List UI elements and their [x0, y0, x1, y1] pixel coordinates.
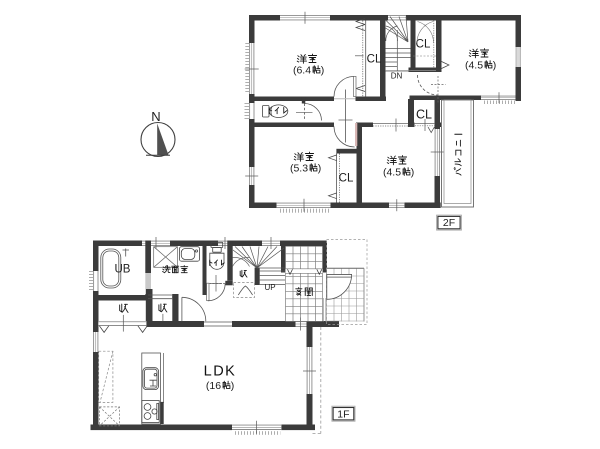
- svg-text:UP: UP: [264, 283, 275, 292]
- svg-text:CL: CL: [416, 39, 431, 51]
- svg-text:LDK: LDK: [204, 364, 237, 380]
- svg-text:(4.5: (4.5: [383, 167, 401, 179]
- svg-text:): ): [321, 65, 325, 77]
- svg-text:): ): [493, 60, 497, 72]
- svg-text:): ): [411, 167, 415, 179]
- svg-text:(6.4: (6.4: [293, 65, 311, 77]
- svg-text:2F: 2F: [443, 217, 455, 229]
- svg-text:CL: CL: [339, 173, 354, 185]
- svg-text:CL: CL: [416, 108, 432, 122]
- svg-text:): ): [231, 380, 235, 392]
- svg-text:1F: 1F: [337, 408, 349, 420]
- svg-text:): ): [318, 163, 322, 175]
- svg-text:DN: DN: [391, 72, 403, 81]
- svg-text:(16: (16: [206, 380, 221, 392]
- svg-text:UB: UB: [115, 264, 131, 276]
- svg-text:(4.5: (4.5: [465, 60, 483, 72]
- svg-text:N: N: [151, 109, 160, 124]
- svg-text:CL: CL: [367, 54, 382, 66]
- svg-text:(5.3: (5.3: [290, 163, 308, 175]
